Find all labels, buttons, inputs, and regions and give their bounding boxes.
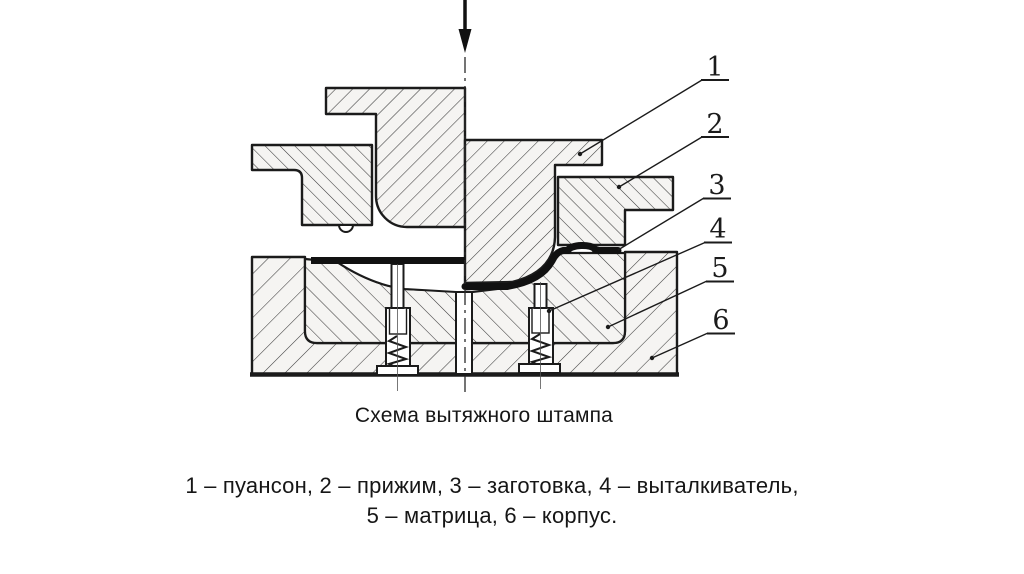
spring-bolt-foot-right bbox=[519, 364, 560, 373]
slide-canvas: 1 2 3 4 5 6 Схема вытяжного штампа 1 – п… bbox=[0, 0, 1024, 574]
callout-number-3: 3 bbox=[708, 170, 725, 201]
legend-line-1: 1 – пуансон, 2 – прижим, 3 – заготовка, … bbox=[0, 471, 984, 501]
callout-number-5: 5 bbox=[711, 253, 728, 284]
figure-legend: 1 – пуансон, 2 – прижим, 3 – заготовка, … bbox=[0, 471, 984, 531]
legend-line-2: 5 – матрица, 6 – корпус. bbox=[0, 501, 984, 531]
figure-caption: Схема вытяжного штампа bbox=[0, 404, 968, 428]
callout-number-6: 6 bbox=[712, 305, 729, 336]
blank-holder-open-left bbox=[252, 145, 372, 232]
callout-number-1: 1 bbox=[706, 52, 723, 83]
callout-number-2: 2 bbox=[706, 109, 723, 140]
callout-number-4: 4 bbox=[709, 214, 726, 245]
blank-holder-closed-right bbox=[558, 177, 673, 245]
down-arrow-icon bbox=[459, 0, 472, 53]
ejector-stem bbox=[456, 292, 472, 374]
holder-locating-bead bbox=[339, 225, 353, 232]
